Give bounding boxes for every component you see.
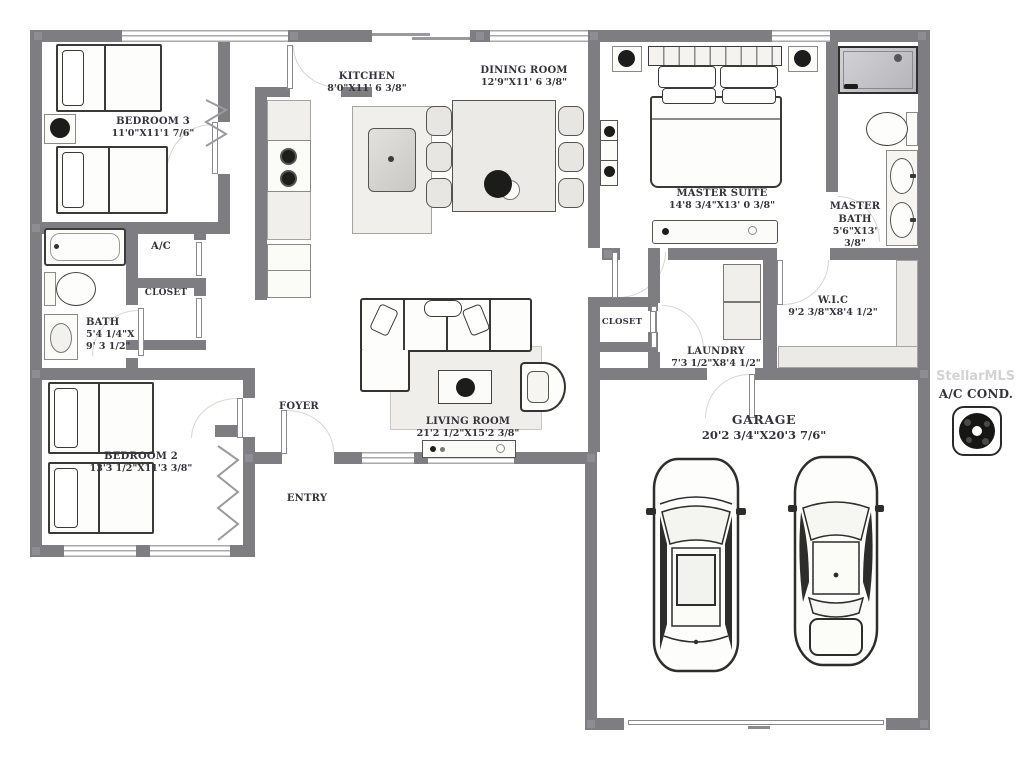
lumbar-pillow bbox=[424, 300, 462, 317]
garage-door-panel bbox=[628, 720, 884, 725]
console-decor bbox=[662, 228, 669, 235]
stove-burner bbox=[280, 170, 297, 187]
wall bbox=[288, 30, 372, 42]
window bbox=[64, 545, 136, 557]
bed-pillow bbox=[658, 66, 716, 88]
front-door-leaf bbox=[281, 410, 287, 454]
room-label-dining: DINING ROOM 12'9"X11' 6 3/8" bbox=[454, 64, 594, 89]
closet-shelf bbox=[778, 346, 918, 368]
room-name: CLOSET bbox=[590, 317, 654, 328]
console-speaker bbox=[440, 447, 445, 452]
wall-post bbox=[918, 32, 926, 40]
wall-post bbox=[476, 32, 484, 40]
bedroom2-door-leaf bbox=[237, 398, 243, 438]
room-name: A/C bbox=[134, 240, 188, 253]
room-dims: 7'3 1/2"X8'4 1/2" bbox=[646, 358, 786, 370]
dresser-console bbox=[652, 220, 778, 244]
toilet-tank bbox=[44, 272, 56, 306]
sofa-cushion-line bbox=[489, 300, 491, 350]
room-name: BATH bbox=[86, 316, 156, 329]
room-name: LAUNDRY bbox=[646, 345, 786, 358]
room-label-garage: GARAGE 20'2 3/4"X20'3 7/6" bbox=[683, 412, 845, 443]
garage-door-panel bbox=[748, 726, 770, 729]
blanket-line bbox=[652, 118, 780, 120]
laundry-door-swing-arc bbox=[662, 305, 704, 350]
sliding-door-panel bbox=[412, 37, 470, 40]
ac-closet-door-leaf bbox=[196, 242, 202, 276]
blanket-line bbox=[104, 46, 106, 110]
bathtub-faucet bbox=[54, 244, 59, 249]
wall-post bbox=[920, 370, 928, 378]
room-dims: 9' 3 1/2" bbox=[86, 341, 156, 353]
console-speaker bbox=[430, 446, 436, 452]
ac-condenser-hub bbox=[972, 426, 982, 436]
wall bbox=[30, 368, 243, 380]
wall-post bbox=[290, 32, 298, 40]
bed-headboard bbox=[648, 46, 782, 66]
console-decor bbox=[748, 226, 757, 235]
wall bbox=[30, 42, 42, 557]
wall bbox=[918, 42, 930, 730]
label-ac-cond: A/C COND. bbox=[926, 387, 1024, 403]
window bbox=[122, 30, 288, 42]
wall bbox=[255, 87, 267, 300]
sink-faucet bbox=[910, 218, 916, 222]
room-label-bedroom2: BEDROOM 2 13'3 1/2"X11'3 3/8" bbox=[71, 450, 211, 475]
room-dims: 14'8 3/4"X13' 0 3/8" bbox=[642, 200, 802, 212]
sliding-door-panel bbox=[372, 33, 430, 36]
room-label-entry: ENTRY bbox=[272, 492, 342, 505]
wall-post bbox=[245, 454, 253, 462]
shelf-rung bbox=[601, 160, 617, 161]
room-label-bedroom3: BEDROOM 3 11'0"X11'1 7/6" bbox=[83, 115, 223, 140]
plant bbox=[456, 378, 475, 397]
room-label-laundry: LAUNDRY 7'3 1/2"X8'4 1/2" bbox=[646, 345, 786, 370]
wall bbox=[588, 307, 600, 452]
sliding-door bbox=[372, 30, 470, 42]
dining-chair bbox=[426, 142, 452, 172]
room-name: A/C COND. bbox=[926, 387, 1024, 403]
room-label-ac-closet: A/C bbox=[134, 240, 188, 253]
room-label-master-bath: MASTER BATH 5'6"X13' 3/8" bbox=[824, 200, 886, 251]
bed-pillow bbox=[662, 88, 716, 104]
room-dims: 8'0"X11' 6 3/8" bbox=[297, 83, 437, 95]
hall-closet-door-leaf bbox=[196, 298, 202, 338]
bed-pillow bbox=[54, 468, 78, 528]
wall-post bbox=[590, 32, 598, 40]
wall-post bbox=[604, 250, 612, 258]
shower-head bbox=[894, 54, 902, 62]
wall bbox=[194, 222, 206, 240]
room-label-living: LIVING ROOM 21'2 1/2"X15'2 3/8" bbox=[398, 415, 538, 440]
bed-pillow bbox=[722, 88, 776, 104]
room-name: DINING ROOM bbox=[454, 64, 594, 77]
shelf-rung bbox=[601, 140, 617, 141]
dining-chair bbox=[558, 142, 584, 172]
wall bbox=[30, 30, 122, 42]
dining-chair bbox=[558, 106, 584, 136]
room-name: ENTRY bbox=[272, 492, 342, 505]
room-name: CLOSET bbox=[134, 288, 198, 300]
refrigerator bbox=[267, 244, 311, 298]
kitchen-door-leaf bbox=[287, 45, 293, 89]
wall bbox=[668, 248, 777, 260]
plant bbox=[604, 126, 615, 137]
wall-post bbox=[587, 454, 595, 462]
room-dims: 9'2 3/8"X8'4 1/2" bbox=[763, 307, 903, 319]
dryer bbox=[723, 302, 761, 340]
room-dims: 21'2 1/2"X15'2 3/8" bbox=[398, 428, 538, 440]
window bbox=[150, 545, 230, 557]
wall-post bbox=[32, 224, 40, 232]
blanket-line bbox=[108, 148, 110, 212]
blanket-line bbox=[98, 384, 100, 452]
master-door-leaf bbox=[612, 252, 618, 298]
room-dims: 12'9"X11' 6 3/8" bbox=[454, 77, 594, 89]
wall bbox=[334, 452, 362, 464]
room-name: MASTER SUITE bbox=[642, 187, 802, 200]
wall-post bbox=[34, 32, 42, 40]
ac-fan-blade bbox=[984, 421, 990, 427]
plant bbox=[50, 118, 70, 138]
plant bbox=[794, 50, 811, 67]
room-dims: 5'4 1/4"X bbox=[86, 329, 156, 341]
wall bbox=[830, 30, 930, 42]
bed-pillow bbox=[62, 152, 84, 208]
wall-post bbox=[32, 547, 40, 555]
bed-pillow bbox=[54, 388, 78, 448]
room-name: BEDROOM 3 bbox=[83, 115, 223, 128]
window bbox=[362, 452, 414, 464]
sink-basin bbox=[50, 323, 72, 353]
wall bbox=[585, 452, 597, 730]
toilet-bowl bbox=[866, 112, 908, 146]
wall bbox=[255, 87, 290, 97]
dining-chair bbox=[558, 178, 584, 208]
room-name: W.I.C bbox=[763, 294, 903, 307]
bathtub-basin bbox=[50, 233, 120, 261]
plant bbox=[618, 50, 635, 67]
room-label-hall-closet: CLOSET bbox=[134, 288, 198, 300]
sofa-cushion-line bbox=[403, 300, 405, 350]
dining-chair bbox=[426, 106, 452, 136]
wall-post bbox=[920, 720, 928, 728]
bed-pillow bbox=[62, 50, 84, 106]
wall bbox=[648, 248, 660, 303]
stove-burner bbox=[280, 148, 297, 165]
wall bbox=[255, 452, 282, 464]
ac-fan-blade bbox=[982, 438, 989, 445]
room-label-bath: BATH 5'4 1/4"X 9' 3 1/2" bbox=[86, 316, 156, 354]
bed bbox=[650, 96, 782, 188]
wall bbox=[243, 368, 255, 398]
wall bbox=[826, 42, 838, 192]
room-label-foyer: FOYER bbox=[264, 400, 334, 413]
watermark: StellarMLS bbox=[936, 369, 1015, 384]
wall-post bbox=[587, 720, 595, 728]
room-dims: 20'2 3/4"X20'3 7/6" bbox=[683, 428, 845, 443]
shower-handle bbox=[844, 84, 858, 89]
closet-bifold-door bbox=[215, 444, 241, 542]
front-door-swing-arc bbox=[287, 410, 334, 452]
room-label-master-suite: MASTER SUITE 14'8 3/4"X13' 0 3/8" bbox=[642, 187, 802, 212]
room-label-kitchen: KITCHEN 8'0"X11' 6 3/8" bbox=[297, 70, 437, 95]
wall bbox=[136, 545, 150, 557]
wall-post bbox=[32, 370, 40, 378]
ac-fan-blade bbox=[964, 419, 971, 426]
refrigerator-door-line bbox=[268, 270, 310, 271]
room-name: GARAGE bbox=[683, 412, 845, 428]
car-suv bbox=[646, 452, 746, 678]
sink-faucet bbox=[910, 174, 916, 178]
room-dims: 11'0"X11'1 7/6" bbox=[83, 128, 223, 140]
wall bbox=[126, 358, 138, 368]
console-decor bbox=[496, 444, 505, 453]
room-name: BEDROOM 2 bbox=[71, 450, 211, 463]
wall bbox=[588, 30, 772, 42]
bed-pillow bbox=[720, 66, 778, 88]
window bbox=[772, 30, 830, 42]
plant bbox=[604, 166, 615, 177]
room-label-wic: W.I.C 9'2 3/8"X8'4 1/2" bbox=[763, 294, 903, 319]
room-dims: 5'6"X13' 3/8" bbox=[824, 226, 886, 251]
dining-chair bbox=[426, 178, 452, 208]
room-label-laundry-closet: CLOSET bbox=[590, 317, 654, 328]
washer bbox=[723, 264, 761, 302]
floor-plan: BEDROOM 3 11'0"X11'1 7/6" KITCHEN 8'0"X1… bbox=[0, 0, 1024, 764]
sink-faucet bbox=[388, 156, 394, 162]
toilet-bowl bbox=[56, 272, 96, 306]
room-name: FOYER bbox=[264, 400, 334, 413]
plant bbox=[484, 170, 512, 198]
car-sedan bbox=[788, 450, 884, 672]
window bbox=[490, 30, 588, 42]
room-name: KITCHEN bbox=[297, 70, 437, 83]
ac-fan-blade bbox=[966, 437, 972, 443]
room-name: LIVING ROOM bbox=[398, 415, 538, 428]
room-name: MASTER BATH bbox=[824, 200, 886, 226]
sofa-chaise bbox=[360, 350, 410, 392]
armchair-cushion bbox=[527, 371, 549, 403]
room-dims: 13'3 1/2"X11'3 3/8" bbox=[71, 463, 211, 475]
